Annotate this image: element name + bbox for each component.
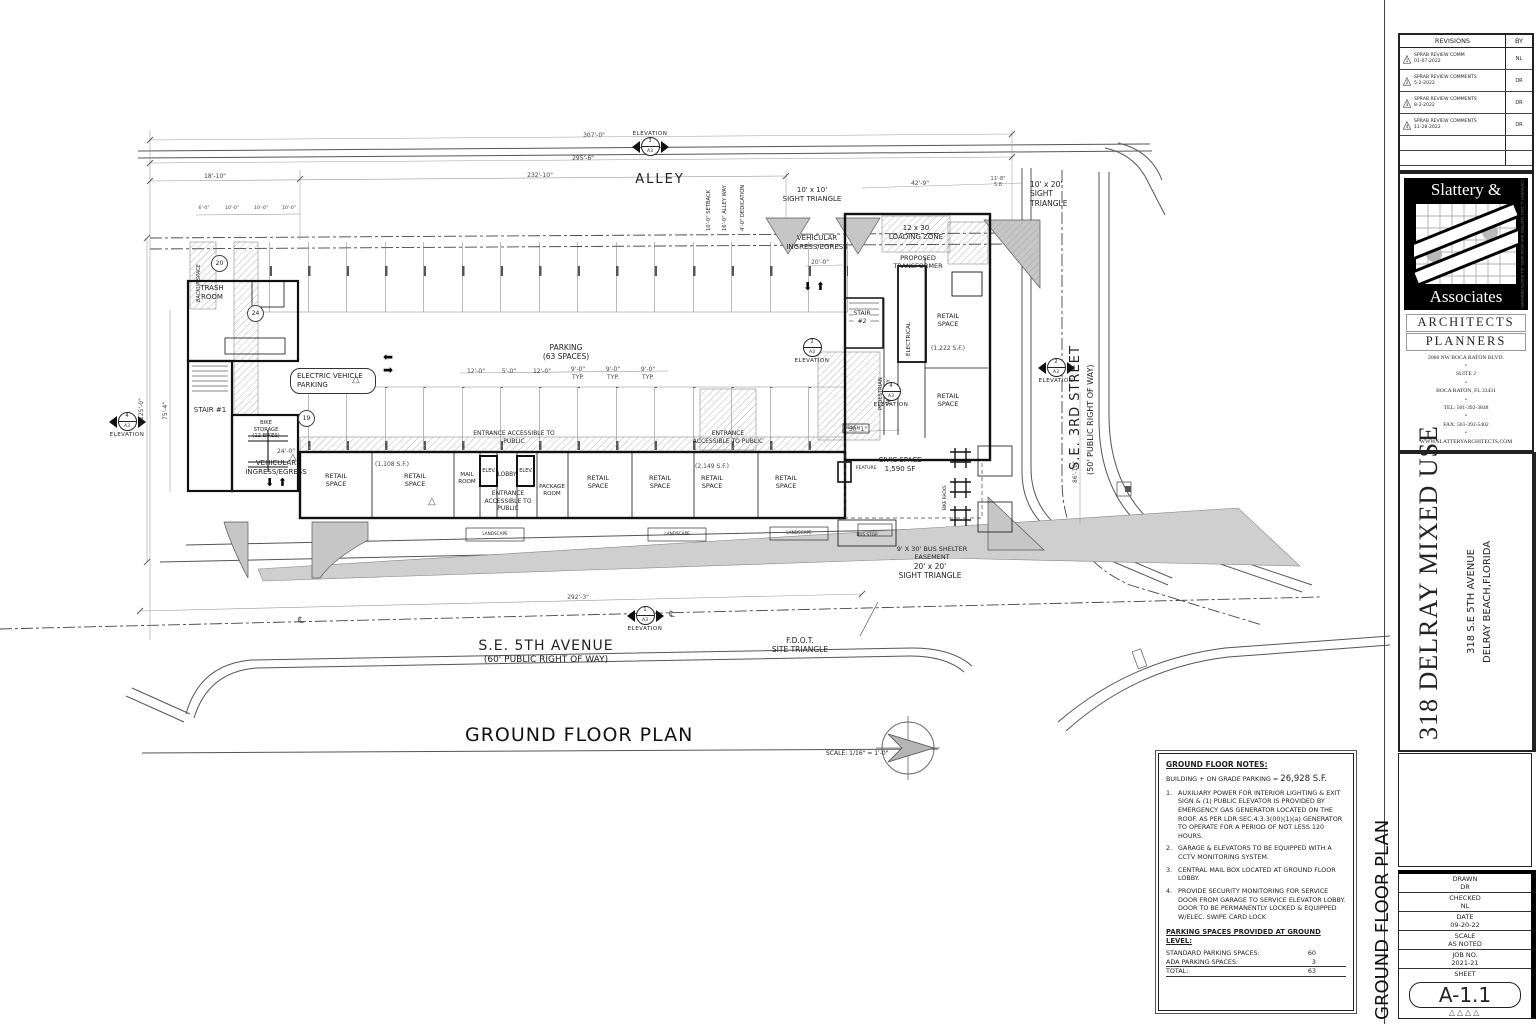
- backup-space-label: BACKUP SPACE: [196, 250, 202, 302]
- stair1-label: STAIR #1: [194, 406, 226, 415]
- retail-4-sf: (2,149 S.F.): [695, 463, 729, 471]
- job-row: JOB NO.2021-21: [1399, 950, 1531, 969]
- revisions-by-header: BY: [1505, 35, 1532, 47]
- drawing-sheet: ALLEY S.E. 5TH AVENUE (60' PUBLIC RIGHT …: [0, 0, 1536, 1024]
- dim-9typ-2: 9'-0"TYP.: [606, 366, 620, 381]
- parking-row-total: TOTAL:63: [1166, 967, 1346, 977]
- drive-arrows-garage: ⬇ ⬆: [803, 280, 825, 294]
- retail-ne-sf: (1,222 S.F.): [931, 345, 965, 353]
- date-row: DATE09-20-22: [1399, 912, 1531, 931]
- dim-86: 86'-10": [1072, 428, 1079, 483]
- elev-2-label: ELEV.: [519, 468, 532, 474]
- building-area-note: BUILDING + ON GRADE PARKING = 26,928 S.F…: [1166, 774, 1346, 785]
- dedication-label: 4'-0" DEDICATION: [740, 183, 746, 231]
- retail-3-label: RETAILSPACE: [587, 474, 609, 490]
- se-5th-row-label: (60' PUBLIC RIGHT OF WAY): [484, 655, 608, 666]
- loading-zone-label: 12 x 30LOADING ZONE: [889, 224, 943, 242]
- transformer-label: PROPOSEDTRANSFORMER: [893, 254, 942, 270]
- dim-232: 232'-10": [527, 172, 553, 180]
- sheet-info-block: DRAWNDR CHECKEDNL DATE09-20-22 SCALEAS N…: [1398, 870, 1536, 1019]
- entrance-main-label: ENTRANCEACCESSIBLE TO PUBLIC: [693, 430, 763, 445]
- project-block: 318 DELRAY MIXED USE 318 S.E 5TH AVENUE …: [1398, 452, 1536, 752]
- parking-table-heading: PARKING SPACES PROVIDED AT GROUND LEVEL:: [1166, 928, 1346, 946]
- landscape-1-label: LANDSCAPE: [482, 531, 507, 536]
- feature-label: FEATURE: [856, 466, 877, 472]
- centerline-symbol-1: ℄: [669, 610, 675, 620]
- retail-1-sf: (1,108 S.F.): [375, 461, 409, 469]
- mail-room-label: MAILROOM: [458, 472, 476, 486]
- marker-triangle-icon: [138, 416, 146, 428]
- bus-shelter-label: 9' X 30' BUS SHELTEREASEMENT: [897, 545, 967, 561]
- dim-50: 50'-1": [849, 426, 867, 434]
- stall-count-19: 19: [298, 410, 315, 427]
- plan-title: GROUND FLOOR PLAN: [465, 724, 693, 748]
- dim-6: 6'-0": [199, 206, 210, 212]
- entrance-lobby-label: ENTRANCEACCESSIBLE TOPUBLIC: [484, 490, 531, 513]
- marker-triangle-icon: [109, 416, 117, 428]
- drive-arrows-left: ⬇ ⬆: [265, 476, 287, 490]
- dim-10b: 10'-0": [254, 206, 268, 212]
- sheet-row: SHEET: [1399, 969, 1531, 979]
- sheet-revision-triangles: △△△△: [1399, 1008, 1531, 1017]
- stair2-label: STAIR#2: [853, 310, 870, 325]
- note-item: 1.AUXILIARY POWER FOR INTERIOR LIGHTING …: [1166, 789, 1346, 841]
- firm-logo-graphic: [1414, 202, 1518, 286]
- revision-row-empty: [1400, 136, 1532, 151]
- vehicular-ingress-top-label: VEHICULARINGRESS/EGRESS: [786, 234, 847, 252]
- marker-triangle-icon: [661, 141, 669, 153]
- firm-name-bottom: Associates: [1404, 288, 1528, 307]
- centerline-symbol-2: ℄: [298, 616, 304, 626]
- dim-20: 20'-0": [811, 259, 829, 267]
- se-3rd-row-label: (50' PUBLIC RIGHT OF WAY): [1086, 295, 1095, 475]
- dim-75: 75'-4": [162, 370, 169, 420]
- dim-9typ-3: 9'-0"TYP.: [641, 366, 655, 381]
- note-item: 4.PROVIDE SECURITY MONITORING FOR SERVIC…: [1166, 887, 1346, 922]
- sight-triangle-10x10-label: 10' x 10'SIGHT TRIANGLE: [783, 186, 842, 204]
- marker-triangle-icon: [1067, 362, 1075, 374]
- north-arrow-icon: [876, 716, 940, 780]
- trash-room-label: TRASHROOM: [200, 284, 223, 302]
- alley-label: ALLEY: [635, 172, 685, 188]
- elevation-marker-2-right: 2A3 ELEVATION: [1034, 358, 1078, 384]
- dim-292: 292'-3": [567, 594, 589, 602]
- stall-count-24: 24: [247, 305, 264, 322]
- parking-row-standard: STANDARD PARKING SPACES:60: [1166, 949, 1346, 958]
- dim-125: 125'-0": [138, 360, 145, 420]
- lobby-label: LOBBY: [498, 472, 517, 479]
- firm-logo: Slattery &: [1404, 178, 1528, 310]
- revision-row-empty: [1400, 151, 1532, 166]
- elevation-marker-4-left: 4A3 ELEVATION: [105, 412, 149, 438]
- elevation-marker-mid-a: 2A3 ELEVATION: [790, 338, 834, 364]
- revisions-table: REVISIONSBY △1 SPRAB REVIEW COMM01-07-20…: [1398, 33, 1534, 172]
- dim-18: 18'-10": [204, 173, 226, 181]
- dim-295: 295'-6": [572, 155, 594, 163]
- alleyway-label: 16'-0" ALLEY WAY: [722, 183, 728, 231]
- landscape-3-label: LANDSCAPE: [786, 530, 811, 535]
- note-item: 3.CENTRAL MAIL BOX LOCATED AT GROUND FLO…: [1166, 866, 1346, 883]
- retail-4-label: RETAILSPACE: [649, 474, 671, 490]
- parking-row-ada: ADA PARKING SPACES:3: [1166, 958, 1346, 968]
- bike-racks-label: BIKE RACKS: [942, 460, 947, 510]
- revision-row: △3 SPRAB REVIEW COMMENTS8-2-2022 DR: [1400, 92, 1532, 114]
- vehicular-ingress-left-label: VEHICULARINGRESS/EGRESS: [245, 459, 306, 477]
- package-room-label: PACKAGEROOM: [539, 484, 565, 498]
- revision-row: △1 SPRAB REVIEW COMM01-07-2022 NL: [1400, 48, 1532, 70]
- bus-stop-label: BUS STOP: [857, 532, 878, 537]
- plan-scale: SCALE: 1/16" = 1'-0": [826, 750, 888, 758]
- project-city: DELRAY BEACH,FLORIDA: [1482, 464, 1493, 740]
- revision-triangle-plan-2: △: [289, 452, 297, 463]
- revision-triangle-icon: △2: [1400, 75, 1414, 86]
- setback-label: 10'-0" SETBACK: [706, 183, 712, 231]
- parking-count-label: PARKING(63 SPACES): [543, 343, 589, 362]
- firm-name-top: Slattery &: [1404, 181, 1528, 200]
- dim-10c: 10'-0": [282, 206, 296, 212]
- revision-triangle-icon: △1: [1400, 53, 1414, 64]
- stall-count-20: 20: [211, 255, 228, 272]
- sight-triangle-20x20-label: 20' x 20'SIGHT TRIANGLE: [899, 562, 962, 581]
- project-address: 318 S.E 5TH AVENUE: [1466, 464, 1477, 740]
- elevation-marker-1-bottom: 1A3 ELEVATION: [623, 606, 667, 632]
- ev-parking-cloud: ELECTRIC VEHICLEPARKING: [290, 368, 376, 394]
- dim-5a: 5'-0": [502, 368, 516, 376]
- title-block-strip: REVISIONSBY △1 SPRAB REVIEW COMM01-07-20…: [1392, 0, 1536, 1024]
- sight-triangle-10x20-label: 10' x 20'SIGHTTRIANGLE: [1030, 180, 1067, 208]
- electrical-label: ELECTRICAL: [906, 276, 912, 356]
- elevation-marker-mid-b: 4A3 ELEVATION: [869, 382, 913, 408]
- drive-arrow-east: ➡: [383, 363, 393, 378]
- revision-row: △4 SPRAB REVIEW COMMENTS11-28-2022 DR: [1400, 114, 1532, 136]
- revision-triangle-icon: △4: [1400, 119, 1414, 130]
- revisions-title: REVISIONS: [1400, 35, 1505, 47]
- marker-triangle-icon: [656, 610, 664, 622]
- firm-architects: ARCHITECTS: [1406, 314, 1526, 332]
- revision-row: △2 SPRAB REVIEW COMMENTS5-2-2022 DR: [1400, 70, 1532, 92]
- copyright-text: COPYRIGHT © 2021 SLATTERY AND ASSOCIATES…: [1520, 180, 1524, 308]
- landscape-2-label: LANDSCAPE: [664, 531, 689, 536]
- notes-heading: GROUND FLOOR NOTES:: [1166, 760, 1346, 770]
- dim-42: 42'-9": [911, 180, 929, 188]
- dim-307: 307'-0": [583, 132, 605, 140]
- civic-space-label: CIVIC SPACE1,590 SF: [878, 456, 921, 474]
- ground-floor-notes: GROUND FLOOR NOTES: BUILDING + ON GRADE …: [1158, 753, 1354, 1011]
- dim-10a: 10'-0": [225, 206, 239, 212]
- marker-triangle-icon: [1038, 362, 1046, 374]
- retail-1-label: RETAILSPACE: [325, 472, 347, 488]
- spare-block: [1398, 753, 1532, 867]
- retail-6-label: RETAILSPACE: [775, 474, 797, 490]
- dim-12a: 12'-0": [467, 368, 485, 376]
- retail-se-label: RETAILSPACE: [937, 392, 959, 408]
- firm-block: Slattery &: [1398, 172, 1534, 452]
- drawn-row: DRAWNDR: [1399, 874, 1531, 893]
- se-5th-avenue-label: S.E. 5TH AVENUE: [478, 638, 613, 656]
- elevation-marker-3: ELEVATION 3A3: [628, 130, 672, 156]
- retail-ne-label: RETAILSPACE: [937, 312, 959, 328]
- dim-12b: 12'-0": [533, 368, 551, 376]
- marker-triangle-icon: [632, 141, 640, 153]
- note-item: 2.GARAGE & ELEVATORS TO BE EQUIPPED WITH…: [1166, 844, 1346, 861]
- project-name: 318 DELRAY MIXED USE: [1414, 464, 1444, 740]
- checked-row: CHECKEDNL: [1399, 893, 1531, 912]
- revision-triangle-plan-3: △: [428, 496, 436, 507]
- firm-planners: PLANNERS: [1406, 333, 1526, 351]
- elev-1-label: ELEV.: [482, 468, 495, 474]
- revision-triangle-icon: △3: [1400, 97, 1414, 108]
- retail-5-label: RETAILSPACE: [701, 474, 723, 490]
- dim-9typ-1: 9'-0"TYP.: [571, 366, 585, 381]
- sheet-number: A-1.1: [1409, 982, 1521, 1008]
- marker-triangle-icon: [627, 610, 635, 622]
- scale-row: SCALEAS NOTED: [1399, 931, 1531, 950]
- bike-storage-label: BIKESTORAGE(12 BIKES): [252, 420, 279, 440]
- retail-2-label: RETAILSPACE: [404, 472, 426, 488]
- revision-triangle-plan-1: △: [352, 374, 360, 385]
- sheet-title-vertical: GROUND FLOOR PLAN: [1372, 845, 1393, 1020]
- dim-11: 11'-8"5.8: [990, 176, 1005, 189]
- entrance-top-label: ENTRANCE ACCESSIBLE TOPUBLIC: [473, 430, 554, 445]
